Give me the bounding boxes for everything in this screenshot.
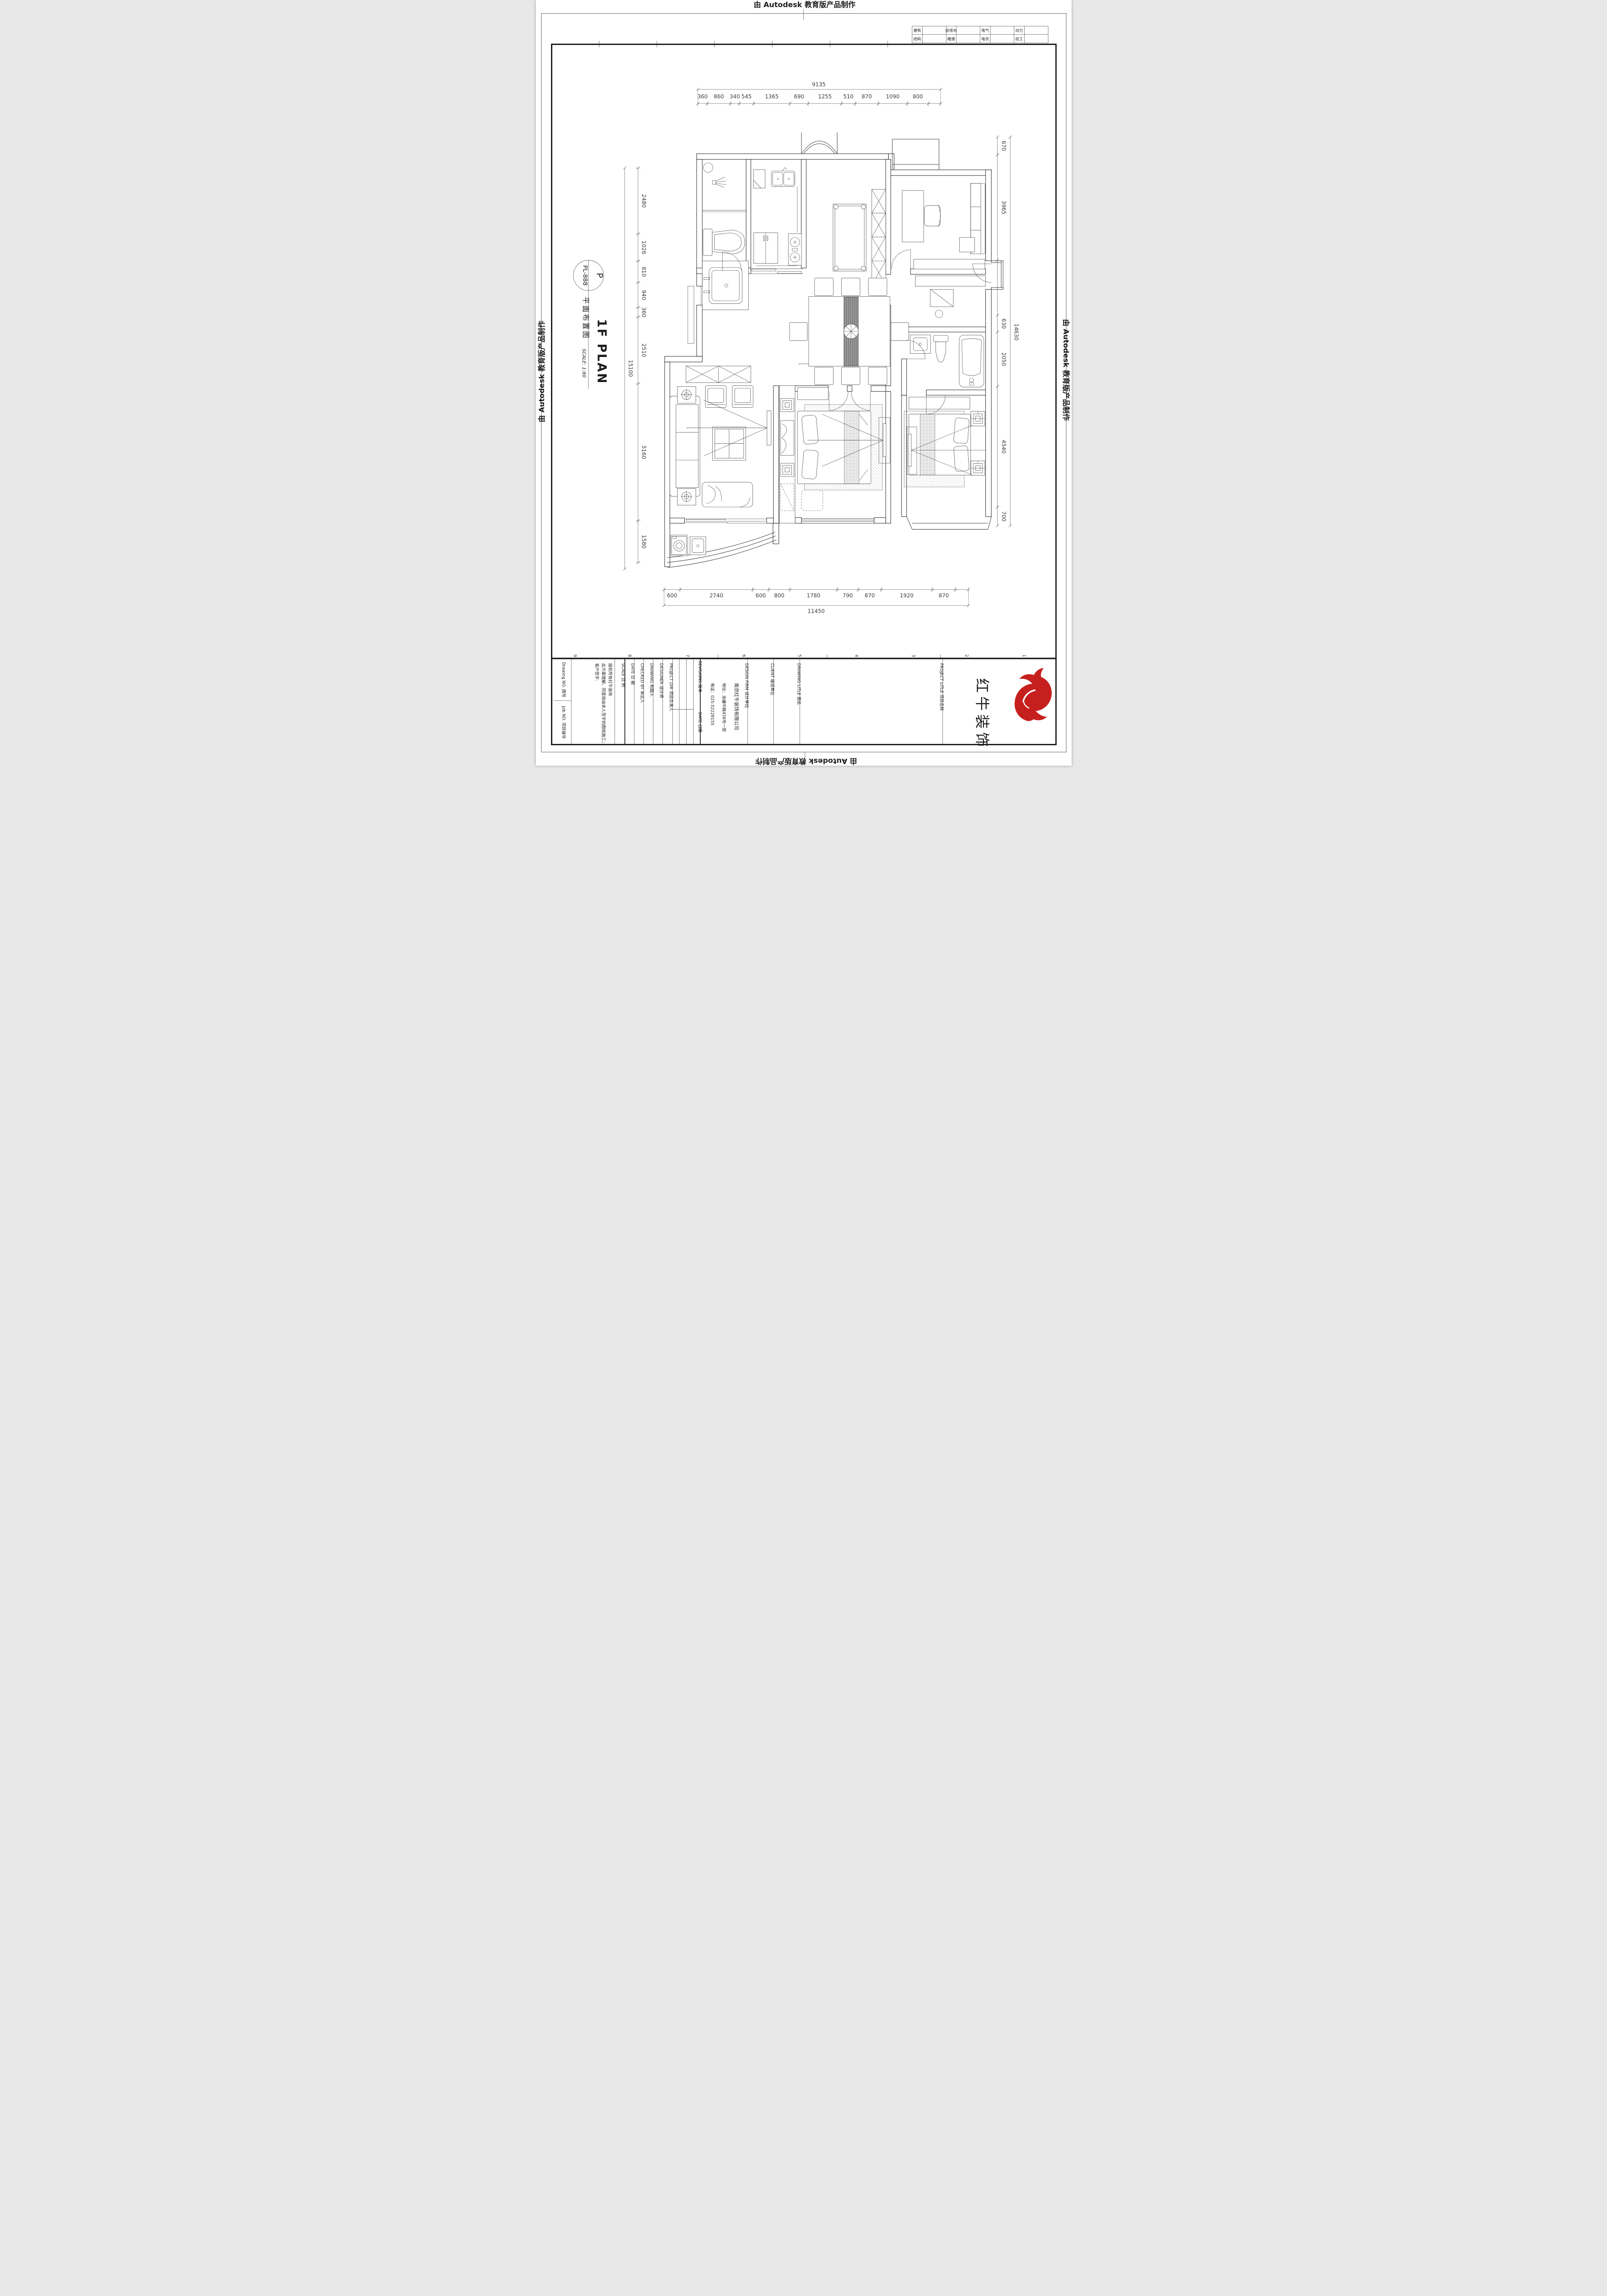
grid-ref-9: 9 — [572, 654, 577, 657]
drawing-title-label: DRAWING LITLE 图名 — [796, 663, 801, 705]
drawing-by-label: DRAWING 制图人 — [649, 663, 654, 697]
design-firm-label: DESIGN FIRM 设计单位 — [744, 663, 749, 708]
scale-label: SCALE 比 例 — [620, 663, 626, 687]
dim-top-10: 800 — [912, 93, 923, 100]
dim-top-6: 1255 — [818, 93, 832, 100]
disc-geipaishui: 给排水 — [945, 28, 956, 33]
dim-bottom-7: 1920 — [900, 592, 913, 599]
corner-cabinet — [753, 170, 765, 188]
firm-address: 地址：龙蟠中路458号一层 — [721, 683, 727, 732]
closet-strip-b — [915, 276, 985, 286]
lamp-table-b — [677, 488, 696, 505]
firm-name: 南京红牛装饰有限公司 — [733, 683, 739, 731]
disc-xiaogong: 校工 — [1015, 37, 1023, 41]
bookshelf — [872, 189, 885, 284]
dim-bottom-total: 11450 — [808, 608, 825, 614]
designer-label: DESIGNER 设计师 — [658, 663, 664, 698]
grid-ref-7: 7 — [684, 654, 689, 657]
bathtub — [959, 335, 983, 387]
project-dir-label: PROJECT DIR 项目负责人 — [668, 663, 674, 712]
dim-left-6: 5160 — [641, 445, 647, 459]
plan-title-en: 1F PLAN — [595, 319, 609, 384]
bed-2 — [909, 414, 970, 475]
vanity-2 — [910, 335, 930, 353]
dim-top-0: 360 — [697, 93, 707, 100]
disc-jiegou: 结构 — [913, 37, 921, 41]
revisions-label: REVISIONS 版本 — [697, 661, 703, 693]
desk-chair — [924, 205, 940, 227]
plan-title-cn: 平面布置图 — [581, 297, 589, 339]
armchair-b — [732, 386, 753, 408]
firm-phone: 电话：025-52228155 — [709, 683, 715, 726]
dim-right-1: 3965 — [1000, 201, 1007, 214]
dim-bottom-1: 2740 — [709, 592, 723, 599]
dim-right-0: 670 — [1000, 141, 1007, 151]
disc-jianzhu: 建筑 — [913, 28, 921, 33]
bar-table — [833, 204, 866, 271]
armchair-a — [705, 386, 726, 408]
storage-x-cabinet — [686, 366, 751, 383]
copyright-line-2: 此方案理解，同意按由本人签字的图纸施工； — [601, 663, 606, 745]
copyright-line-1: 版权所有红牛装饰 — [607, 663, 613, 696]
discipline-table: 建筑 给排水 电气 动力 结构 暖通 电讯 校工 — [912, 26, 1048, 43]
grid-ref-1: 1 — [1021, 654, 1026, 657]
logo-text: 红牛装饰 — [973, 678, 990, 750]
dim-left-3: 940 — [641, 290, 647, 300]
dim-bottom-0: 600 — [667, 592, 677, 599]
dim-left-total: 15100 — [627, 360, 634, 377]
dim-top-8: 870 — [862, 93, 872, 100]
coffee-table — [712, 427, 745, 460]
grid-ref-2: 2 — [964, 654, 968, 657]
dim-top-1: 860 — [714, 93, 724, 100]
desk — [902, 191, 923, 242]
dim-left-7: 1580 — [641, 535, 647, 549]
bubble-code: PL-888 — [582, 265, 589, 285]
dim-top-5: 690 — [794, 93, 804, 100]
bubble-letter: P — [594, 273, 604, 278]
bed-1 — [797, 411, 871, 484]
chaise — [702, 482, 753, 507]
toilet-icon — [703, 229, 744, 256]
dim-bottom-2: 600 — [755, 592, 766, 599]
nightstand-a — [971, 412, 984, 426]
balcony-sink — [690, 537, 706, 555]
lamp-table-a — [677, 386, 696, 403]
disc-dianxun: 电讯 — [981, 37, 989, 41]
plan-scale: SCALE: 1:80 — [581, 348, 586, 377]
dim-bottom-3: 800 — [774, 592, 784, 599]
banner-top: 由 Autodesk 教育版产品制作 — [753, 0, 855, 9]
dim-left-2: 810 — [641, 266, 647, 277]
closet-strip-a — [913, 259, 984, 269]
side-table — [959, 238, 974, 252]
grid-ref-3: 3 — [910, 654, 915, 657]
dim-left-4: 360 — [641, 307, 647, 318]
dim-bottom-4: 1780 — [807, 592, 820, 599]
washing-machine — [670, 535, 688, 556]
dim-top-3: 545 — [741, 93, 752, 100]
grid-ref-6: 6 — [741, 654, 745, 657]
dim-right-3: 2050 — [1000, 352, 1007, 366]
dim-right-5: 700 — [1000, 511, 1007, 521]
copyright-line-3: 客户签字: — [594, 663, 600, 681]
banner-left: 由 Autodesk 教育版产品制作 — [537, 320, 546, 422]
dim-left-5: 2510 — [641, 344, 647, 357]
disc-dongli: 动力 — [1015, 28, 1023, 33]
dim-left-1: 1026 — [641, 240, 647, 254]
disc-dianqi: 电气 — [981, 28, 989, 33]
dim-top-7: 510 — [843, 93, 854, 100]
dim-right-total: 14630 — [1013, 323, 1019, 340]
job-no-label: Job NO. 项目编号 — [561, 705, 567, 739]
dim-bottom-6: 870 — [864, 592, 875, 599]
dim-top-total: 9135 — [812, 81, 826, 88]
vanity-icon — [702, 261, 748, 310]
banner-bottom: 由 Autodesk 教育版产品制作 — [755, 757, 857, 766]
grid-ref-8: 8 — [627, 654, 632, 657]
wardrobe-1 — [797, 388, 828, 400]
dim-top-4: 1365 — [765, 93, 779, 100]
drawing-sheet: 由 Autodesk 教育版产品制作 由 Autodesk 教育版产品制作 由 … — [536, 0, 1072, 766]
wardrobe-2 — [909, 397, 969, 409]
checked-by-label: CHECKED BY 审定人 — [639, 663, 645, 703]
dim-left-0: 2480 — [641, 194, 647, 208]
drawing-no-label: Drawing NO. 图号 — [561, 662, 566, 698]
client-label: CLIENT 建设单位 — [770, 663, 775, 695]
banner-right: 由 Autodesk 教育版产品制作 — [1061, 319, 1070, 421]
shoe-cabinet — [930, 289, 953, 307]
rev-date-label: DATE 日期 — [697, 712, 702, 732]
project-title-label: PROJECT LITLE 项目名称 — [938, 663, 944, 711]
sofa-3seat — [670, 396, 699, 496]
tv-cabinet-column — [779, 386, 795, 523]
grid-ref-5: 5 — [797, 654, 801, 657]
nightstand-b — [971, 461, 984, 476]
dim-right-4: 4540 — [1000, 440, 1007, 454]
dim-top-9: 1090 — [886, 93, 900, 100]
date-label: DATE 日 期 — [630, 663, 635, 685]
dim-bottom-8: 870 — [938, 592, 949, 599]
dim-right-2: 630 — [1000, 319, 1007, 329]
disc-nuantong: 暖通 — [947, 37, 955, 41]
fridge-icon — [753, 233, 778, 264]
grid-ref-4: 4 — [854, 654, 858, 657]
stove-icon — [788, 234, 801, 265]
centerpiece — [844, 324, 858, 339]
dim-bottom-5: 790 — [842, 592, 853, 599]
dim-top-2: 340 — [729, 93, 740, 100]
